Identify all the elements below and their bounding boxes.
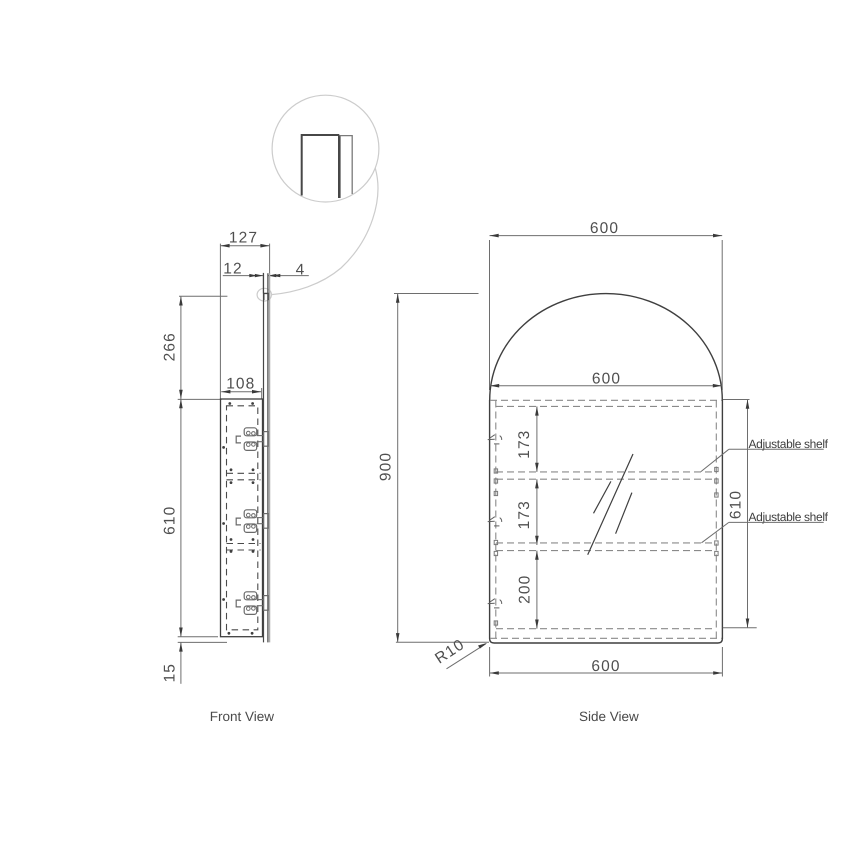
svg-text:900: 900 — [378, 452, 395, 481]
svg-text:15: 15 — [162, 663, 179, 682]
svg-text:Side View: Side View — [579, 709, 639, 724]
svg-text:600: 600 — [590, 220, 619, 237]
svg-text:266: 266 — [162, 332, 179, 361]
svg-text:610: 610 — [162, 506, 179, 535]
svg-text:173: 173 — [516, 430, 533, 459]
svg-text:127: 127 — [229, 230, 258, 247]
svg-text:600: 600 — [591, 658, 620, 675]
svg-text:108: 108 — [226, 376, 255, 393]
svg-text:Front View: Front View — [210, 709, 275, 724]
svg-text:12: 12 — [223, 261, 242, 278]
svg-text:173: 173 — [516, 500, 533, 529]
svg-text:600: 600 — [592, 371, 621, 388]
svg-text:610: 610 — [727, 490, 744, 519]
svg-text:200: 200 — [517, 575, 534, 604]
